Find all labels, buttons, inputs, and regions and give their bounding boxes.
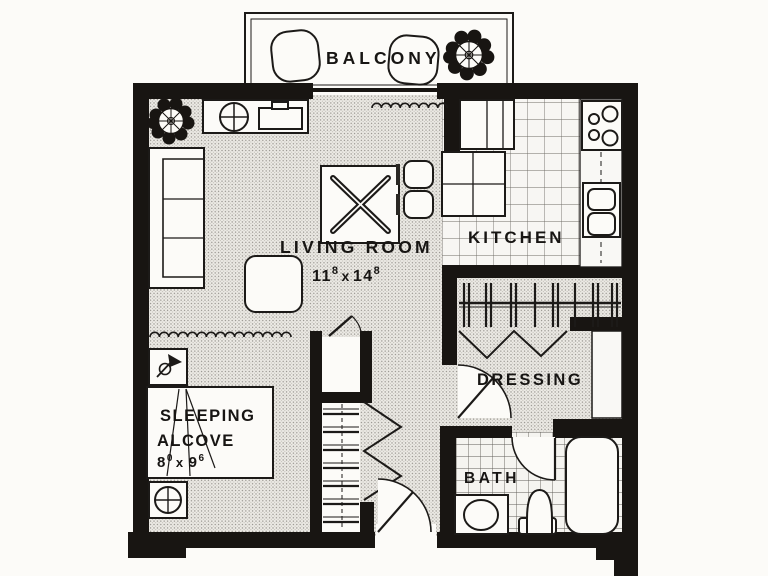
dining-chair	[404, 161, 433, 188]
nightstand-table	[149, 482, 187, 518]
dressing-label: DRESSING	[477, 371, 583, 389]
sleeping-alcove-dimensions: 80x96	[157, 453, 206, 471]
balcony-label: BALCONY	[326, 48, 441, 68]
bed: SLEEPING ALCOVE 80x96	[147, 387, 273, 478]
bath-vanity	[455, 495, 508, 534]
sofa	[149, 148, 204, 288]
sleeping-alcove-label-line2: ALCOVE	[157, 432, 235, 450]
sink-icon	[583, 183, 620, 237]
dressing-counter	[592, 331, 622, 418]
nightstand-lamp	[149, 349, 187, 385]
stove-icon	[582, 101, 622, 150]
sleeping-alcove-label-line1: SLEEPING	[160, 407, 255, 425]
kitchen-label: KITCHEN	[468, 228, 565, 247]
balcony-lounge-chair	[270, 29, 322, 84]
dining-chair	[404, 191, 433, 218]
balcony-area: BALCONY	[245, 13, 513, 91]
armchair	[245, 256, 302, 312]
bathtub-icon	[566, 437, 618, 534]
folding-table-icon	[321, 166, 399, 243]
floor-plan-page: BALCONY	[0, 0, 768, 576]
tv-icon	[259, 108, 302, 129]
living-room-dimensions: 118x148	[312, 265, 381, 285]
floor-plan-drawing: BALCONY	[0, 0, 768, 576]
coat-closet-interior	[322, 337, 360, 392]
living-room-label: LIVING ROOM	[280, 237, 433, 257]
console-table	[203, 100, 308, 133]
bath-label: BATH	[464, 470, 520, 487]
